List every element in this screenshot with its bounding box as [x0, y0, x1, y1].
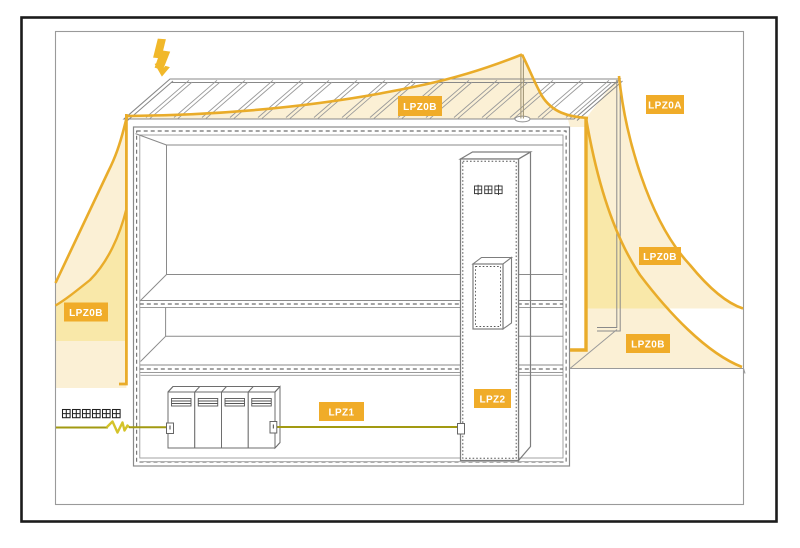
svg-text:LPZ0B: LPZ0B: [631, 340, 665, 351]
svg-text:LPZ0B: LPZ0B: [69, 308, 103, 319]
svg-text:LPZ1: LPZ1: [328, 408, 354, 419]
svg-text:LPZ0B: LPZ0B: [403, 102, 437, 113]
svg-text:LPZ0A: LPZ0A: [648, 101, 682, 112]
svg-text:LPZ0B: LPZ0B: [643, 252, 677, 263]
svg-text:LPZ2: LPZ2: [479, 395, 505, 406]
